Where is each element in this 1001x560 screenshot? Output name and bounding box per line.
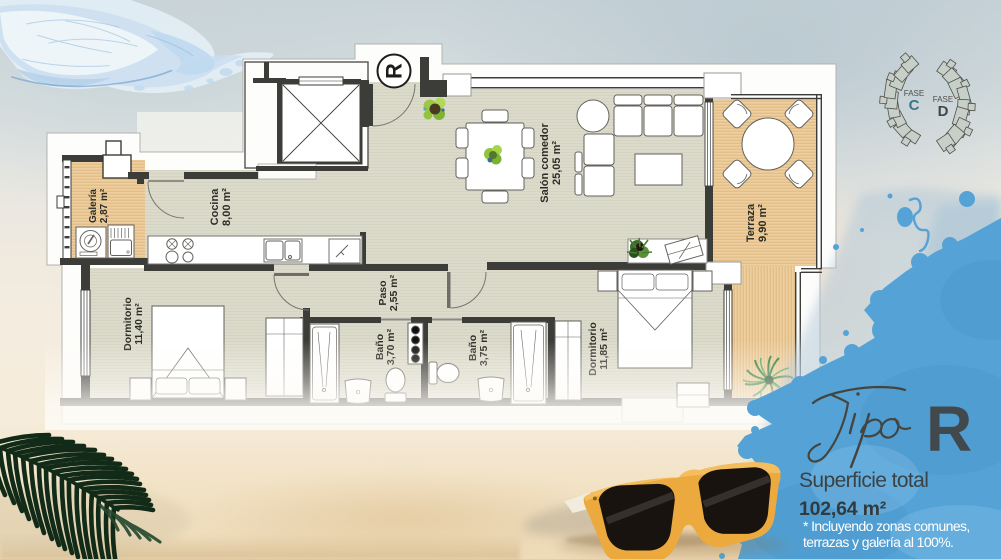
svg-text:R: R bbox=[382, 63, 407, 79]
svg-text:D: D bbox=[938, 103, 949, 120]
svg-text:Terraza9,90 m²: Terraza9,90 m² bbox=[745, 203, 769, 242]
svg-text:Cocina8,00 m²: Cocina8,00 m² bbox=[209, 188, 233, 226]
svg-text:C: C bbox=[909, 97, 920, 114]
svg-text:R: R bbox=[926, 393, 972, 465]
svg-text:Galería2,87 m²: Galería2,87 m² bbox=[88, 188, 110, 223]
